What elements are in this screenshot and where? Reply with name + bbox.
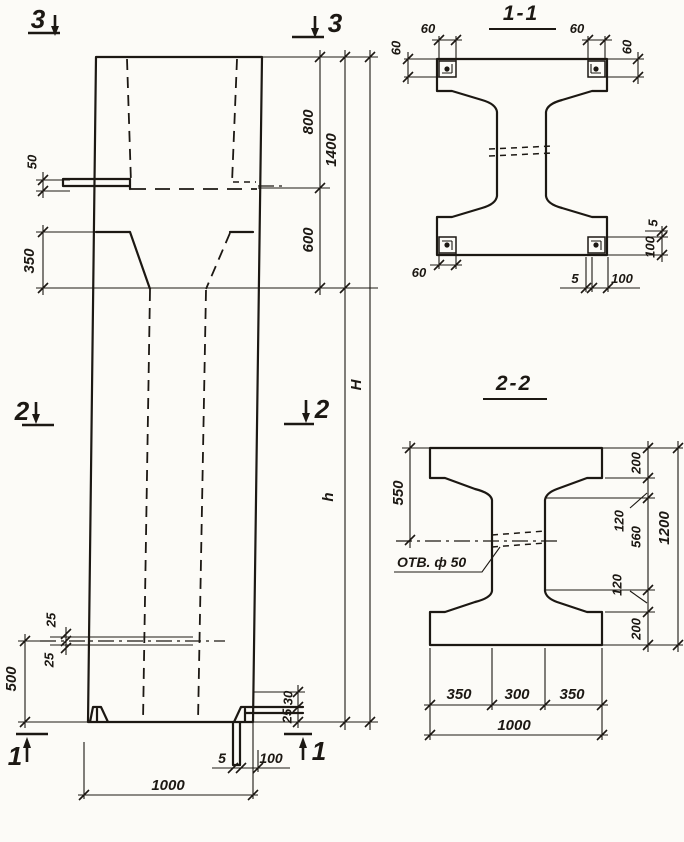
s1-dim-60-top-left-w: 60 — [421, 21, 436, 36]
elevation-outline — [63, 57, 303, 765]
s2-dim-1000: 1000 — [497, 717, 531, 734]
dim-plate-100: 100 — [259, 750, 283, 766]
section-mark-1-left: 1 — [8, 734, 48, 771]
s1-dim-5-bottom: 5 — [571, 271, 579, 286]
elevation-dimension-ticks — [20, 52, 375, 800]
section-mark-1-right-label: 1 — [312, 736, 326, 766]
dim-haunch-350: 350 — [21, 248, 38, 274]
s2-dim-550: 550 — [390, 480, 407, 506]
dim-taper-600: 600 — [300, 227, 317, 253]
elevation-hidden-edges — [127, 59, 237, 722]
dim-total-H: H — [348, 378, 365, 390]
s2-dim-1200: 1200 — [656, 511, 673, 545]
s2-dim-120-top: 120 — [611, 509, 626, 531]
s1-dim-60-top-right-h: 60 — [619, 39, 634, 54]
section-2-2-view: 2-2 ОТВ. ф 50 550 200 120 560 120 200 12… — [390, 372, 683, 740]
dim-ledge-50: 50 — [24, 154, 39, 169]
dim-foot-25: 25 — [279, 708, 294, 724]
dim-head-total-1400: 1400 — [323, 133, 340, 167]
section-mark-1-right: 1 — [284, 734, 326, 766]
section-1-1-hole-dashes — [489, 146, 553, 156]
s2-dim-200-top: 200 — [628, 451, 643, 474]
dim-shaft-h: h — [320, 492, 337, 501]
section-mark-3-right-label: 3 — [328, 8, 343, 38]
s2-dim-300: 300 — [504, 686, 530, 703]
dim-hole-25-bot: 25 — [41, 652, 56, 668]
drawing-sheet: 50 350 800 600 1400 h H 25 25 500 30 25 … — [0, 0, 684, 842]
s1-dim-60-bottom-left: 60 — [412, 265, 427, 280]
s2-dim-350-left: 350 — [446, 686, 472, 703]
section-mark-2-right-label: 2 — [314, 394, 330, 424]
s2-dim-560: 560 — [628, 525, 643, 547]
section-2-2-hole-dashes — [492, 531, 545, 547]
s1-dim-60-top-left-h: 60 — [388, 40, 403, 55]
s1-dim-5-side: 5 — [645, 219, 660, 227]
s2-dim-200-bottom: 200 — [628, 617, 643, 640]
s2-dim-120-bottom: 120 — [609, 573, 624, 595]
section-2-2-hole-label: ОТВ. ф 50 — [397, 554, 466, 570]
section-2-2-title: 2-2 — [495, 372, 532, 395]
column-drawing: 50 350 800 600 1400 h H 25 25 500 30 25 … — [0, 0, 684, 842]
section-1-1-title: 1-1 — [503, 2, 539, 25]
elevation-view: 50 350 800 600 1400 h H 25 25 500 30 25 … — [3, 4, 378, 800]
dim-hole-level-500: 500 — [3, 666, 20, 692]
section-1-1-view: 1-1 60 60 60 60 60 5 100 5 100 — [388, 2, 668, 293]
section-mark-2-right: 2 — [284, 394, 330, 424]
dim-hole-25-top: 25 — [43, 612, 58, 628]
section-mark-3-left: 3 — [28, 4, 60, 36]
section-mark-2-left: 2 — [14, 396, 54, 426]
section-2-2-dimension-lines — [402, 441, 683, 740]
dim-foot-30: 30 — [280, 690, 295, 705]
s1-dim-100-bottom: 100 — [611, 271, 633, 286]
section-mark-2-left-label: 2 — [14, 396, 30, 426]
s1-dim-60-top-right-w: 60 — [570, 21, 585, 36]
section-1-1-outline — [437, 59, 607, 255]
section-mark-3-left-label: 3 — [31, 4, 46, 34]
section-2-2-outline — [430, 448, 602, 645]
dim-head-800: 800 — [300, 109, 317, 135]
section-mark-3-right: 3 — [292, 8, 343, 38]
s1-dim-100-side: 100 — [642, 235, 657, 257]
elevation-centerlines — [40, 186, 287, 641]
section-mark-1-left-label: 1 — [8, 741, 22, 771]
dim-plate-5: 5 — [218, 750, 226, 766]
dim-base-1000: 1000 — [151, 777, 185, 794]
section-1-1-embedded-plates — [439, 61, 605, 253]
s2-dim-350-right: 350 — [559, 686, 585, 703]
